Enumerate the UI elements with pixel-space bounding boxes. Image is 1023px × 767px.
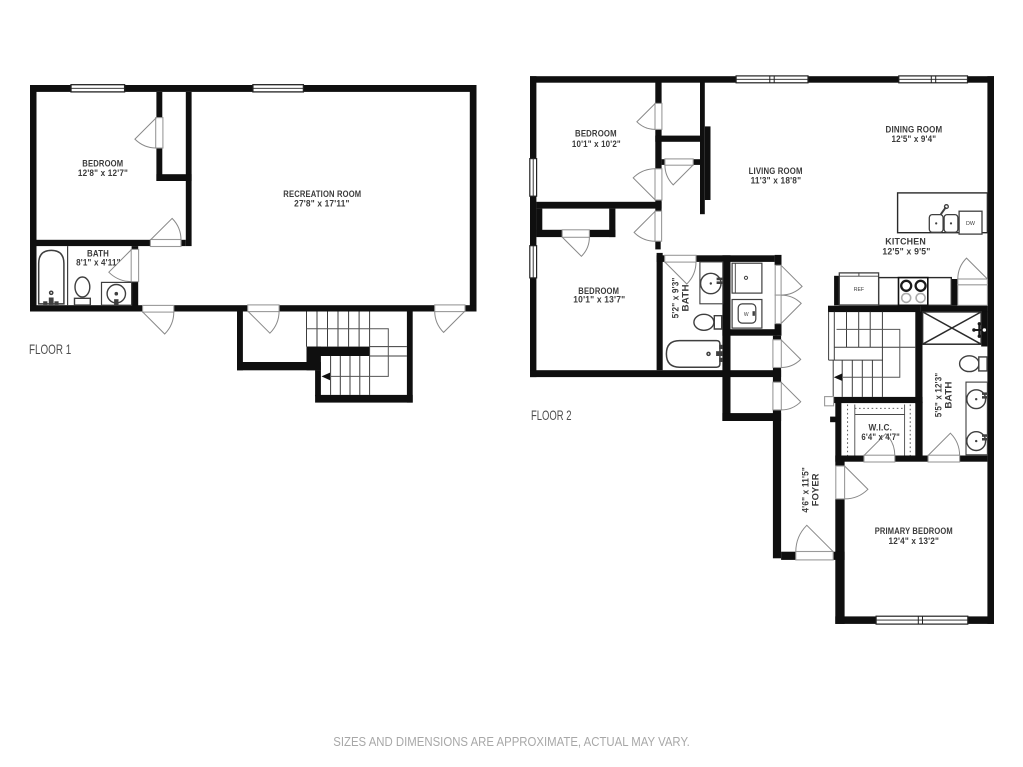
svg-text:12'8" x 12'7": 12'8" x 12'7": [78, 168, 128, 179]
svg-text:FLOOR 2: FLOOR 2: [531, 408, 572, 423]
svg-text:BATH: BATH: [681, 284, 692, 311]
svg-text:W: W: [744, 312, 749, 318]
svg-text:8'1" x 4'11": 8'1" x 4'11": [76, 258, 121, 269]
svg-text:DW: DW: [966, 221, 976, 227]
svg-text:SIZES AND DIMENSIONS ARE APPRO: SIZES AND DIMENSIONS ARE APPROXIMATE, AC…: [333, 734, 690, 749]
svg-text:10'1" x 13'7": 10'1" x 13'7": [573, 295, 625, 306]
svg-text:REF: REF: [854, 287, 864, 293]
svg-text:BATH: BATH: [944, 381, 955, 408]
svg-text:FOYER: FOYER: [810, 473, 821, 506]
svg-text:10'1" x 10'2": 10'1" x 10'2": [572, 139, 621, 150]
svg-text:12'5" x 9'5": 12'5" x 9'5": [882, 247, 930, 258]
svg-text:27'8" x 17'11": 27'8" x 17'11": [294, 199, 350, 210]
svg-text:12'5" x 9'4": 12'5" x 9'4": [892, 134, 937, 145]
svg-text:11'3" x 18'8": 11'3" x 18'8": [751, 176, 802, 187]
svg-text:6'4" x 4'7": 6'4" x 4'7": [861, 432, 900, 443]
svg-text:FLOOR 1: FLOOR 1: [29, 342, 71, 357]
svg-text:12'4" x 13'2": 12'4" x 13'2": [888, 536, 939, 547]
